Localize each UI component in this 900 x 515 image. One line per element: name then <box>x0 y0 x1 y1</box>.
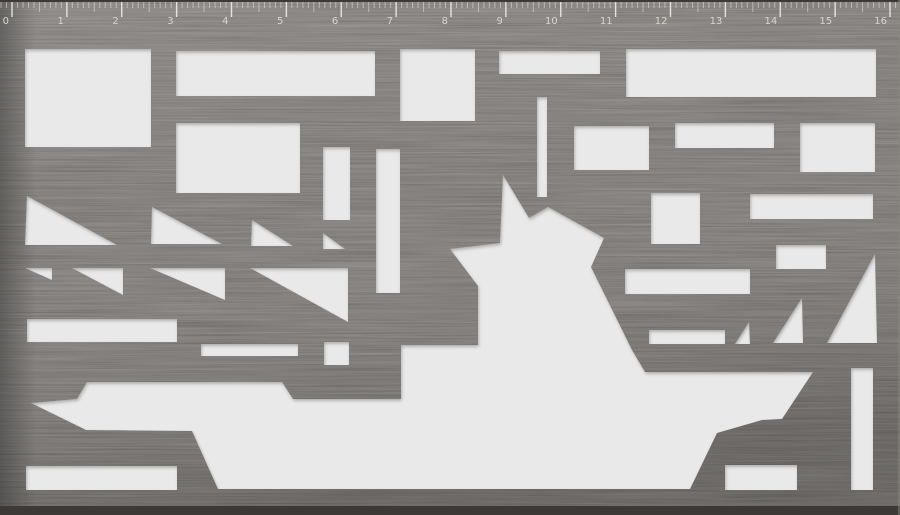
ruler-number: 13 <box>710 16 723 27</box>
cutout-rect <box>574 126 649 170</box>
cutout-rect <box>776 245 826 269</box>
cutout-rect <box>625 269 750 294</box>
cutout-rect <box>376 149 400 293</box>
cutout-rect <box>324 342 349 365</box>
cutout-rect <box>26 466 177 490</box>
cutout-rect <box>626 49 876 97</box>
ruler-number: 1 <box>58 16 64 27</box>
cutout-rect <box>651 193 700 244</box>
cutout-rect <box>27 319 177 342</box>
ruler-number: 11 <box>600 16 613 27</box>
cutout-rect <box>400 49 475 121</box>
cutout-rect <box>25 49 151 147</box>
ruler-number: 12 <box>655 16 668 27</box>
ruler-number: 2 <box>112 16 118 27</box>
ruler-number: 7 <box>387 16 393 27</box>
cutout-rect <box>750 194 873 219</box>
cutout-rect <box>851 368 873 490</box>
ruler-number: 6 <box>332 16 338 27</box>
ruler-number: 10 <box>545 16 558 27</box>
cutout-rect <box>323 147 350 220</box>
ruler-number: 5 <box>277 16 283 27</box>
ruler-number: 16 <box>874 16 887 27</box>
cutout-rect <box>176 51 375 96</box>
cutout-rect <box>499 51 600 74</box>
cutout-rect <box>176 123 300 193</box>
cutout-rect <box>201 344 298 356</box>
ship-stencil-image: 012345678910111213141516 <box>0 0 900 515</box>
ruler-number: 15 <box>819 16 832 27</box>
ruler-number: 14 <box>765 16 778 27</box>
cutout-rect <box>725 465 797 490</box>
ruler-number: 4 <box>222 16 228 27</box>
ruler-number: 8 <box>442 16 448 27</box>
ruler-number: 3 <box>167 16 173 27</box>
stencil-canvas: 012345678910111213141516 <box>0 0 900 515</box>
cutout-rect <box>800 123 875 172</box>
plate-top-edge <box>0 0 900 2</box>
cutout-rect <box>675 123 774 148</box>
cutout-rect <box>537 97 547 197</box>
cutout-rect <box>649 330 725 344</box>
ruler-number: 9 <box>497 16 503 27</box>
plate-bottom-edge <box>0 506 900 515</box>
ruler-number: 0 <box>3 16 9 27</box>
